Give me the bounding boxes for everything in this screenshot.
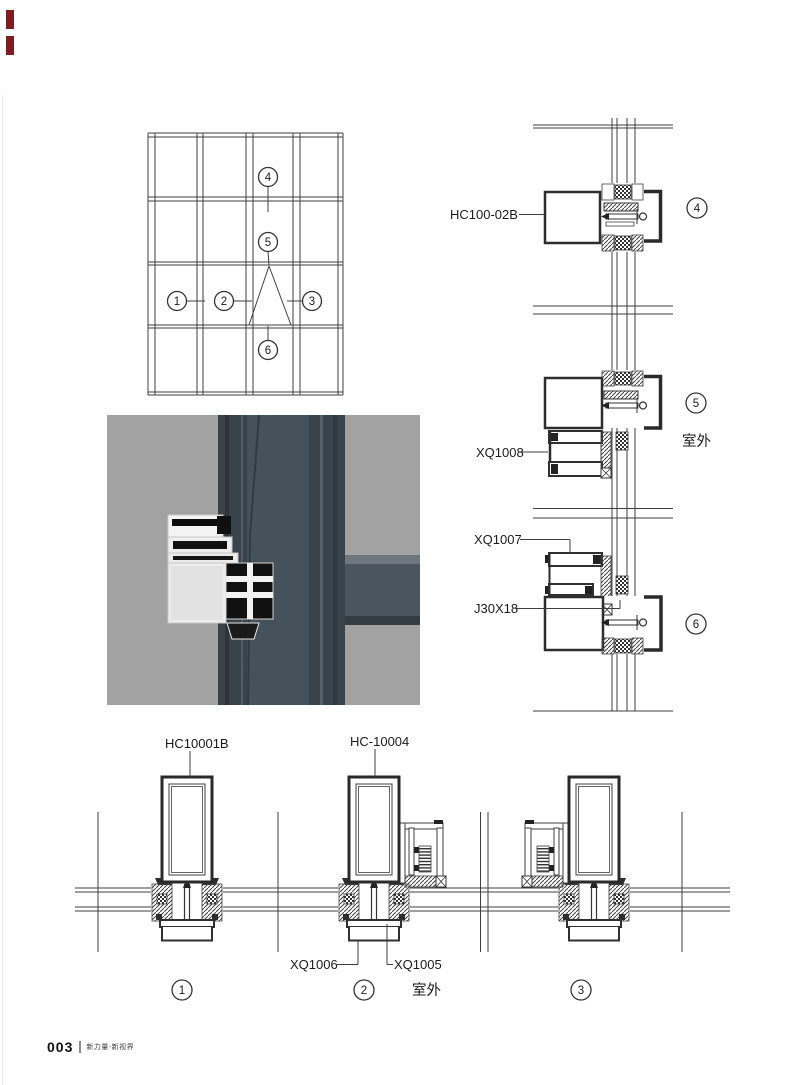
- insulation-strip: [601, 556, 611, 598]
- pressure-plate: [347, 920, 401, 927]
- label-xq1007: XQ1007: [474, 532, 522, 547]
- callout-4-number: 4: [265, 172, 272, 184]
- elevation-callout-1: 1: [168, 292, 187, 311]
- label-j30x18: J30X18: [474, 601, 518, 616]
- section-marker-4: 4: [687, 198, 707, 218]
- page-footer: 003 新力量·新视界: [47, 1039, 134, 1055]
- callout-1-number: 1: [174, 296, 180, 308]
- callout-3-number: 3: [309, 296, 315, 308]
- svg-text:5: 5: [693, 398, 699, 410]
- vent-frame-profiles: [549, 431, 602, 477]
- page-edge-mark-bottom: [6, 36, 14, 55]
- label-xq1008: XQ1008: [476, 445, 524, 460]
- elevation-callout-3: 3: [303, 292, 322, 311]
- detail-5-node: XQ1008 5 室外: [476, 370, 711, 478]
- openable-window-symbol: [249, 266, 291, 325]
- elevation-callout-4: 4: [259, 168, 278, 187]
- elevation-leader-lines: [187, 187, 303, 341]
- x-box: [522, 876, 532, 887]
- cover-cap: [349, 927, 399, 941]
- svg-text:3: 3: [578, 985, 584, 997]
- glazing-gasket: [616, 576, 628, 594]
- thermal-insert: [604, 203, 638, 211]
- detail-4-node: HC100-02B 4: [450, 183, 707, 252]
- svg-text:6: 6: [693, 619, 699, 631]
- mullion-profile-box: [349, 777, 399, 882]
- section-marker-6: 6: [686, 614, 706, 634]
- x-box: [436, 876, 446, 887]
- callout-6-number: 6: [265, 345, 271, 357]
- scan-edge-line: [2, 95, 3, 1085]
- gasket-block: [615, 185, 631, 199]
- insulation-strip: [601, 432, 611, 468]
- svg-text:1: 1: [179, 985, 185, 997]
- page-number: 003: [47, 1039, 73, 1055]
- page-edge-mark-top: [6, 10, 14, 29]
- vent-sash-plan: [399, 820, 446, 887]
- mullion-profile-box: [545, 192, 600, 243]
- mullion-profile-box: [162, 777, 212, 882]
- pressure-plate: [567, 920, 621, 927]
- horizontal-section-details: HC10001B 1: [60, 730, 760, 1008]
- section-marker-5: 5: [686, 393, 706, 413]
- footer-divider: [79, 1041, 81, 1053]
- svg-text:2: 2: [361, 985, 367, 997]
- section-marker-2: 2: [354, 980, 374, 1000]
- mullion-profile-box: [545, 378, 602, 428]
- label-hc100-02b: HC100-02B: [450, 207, 518, 222]
- pressure-plate: [160, 920, 214, 927]
- vent-sash-plan: [522, 820, 569, 887]
- elevation-callout-6: 6: [259, 341, 278, 360]
- outdoor-annotation-bottom: 室外: [412, 982, 441, 999]
- glazing-gasket: [616, 432, 628, 450]
- cover-cap: [569, 927, 619, 941]
- journal-title: 新力量·新视界: [86, 1042, 134, 1052]
- vent-sash-profiles: [545, 553, 602, 597]
- callout-2-number: 2: [221, 296, 227, 308]
- x-box: [601, 468, 611, 478]
- elevation-grid-lines: [148, 133, 343, 395]
- detail-1-node: HC10001B 1: [151, 736, 229, 1000]
- svg-text:4: 4: [694, 203, 701, 215]
- profile-render-photo: [107, 415, 420, 705]
- label-hc10001b: HC10001B: [165, 736, 229, 751]
- curtain-wall-elevation-diagram: 4 5 1 2 3 6: [130, 110, 370, 410]
- label-hc-10004: HC-10004: [350, 734, 409, 749]
- pressure-plate-bracket: [644, 377, 661, 429]
- detail-6-node: XQ1007 J30X18 6: [474, 532, 706, 654]
- catalog-page: 4 5 1 2 3 6: [0, 0, 800, 1085]
- outdoor-annotation-right: 室外: [682, 433, 711, 450]
- detail-2-node: HC-10004 XQ1006 XQ1005 2 室外: [290, 734, 446, 1000]
- cover-cap: [162, 927, 212, 941]
- elevation-callout-2: 2: [215, 292, 234, 311]
- elevation-callout-5: 5: [259, 233, 278, 252]
- callout-5-number: 5: [265, 237, 271, 249]
- mullion-profile-box: [545, 597, 603, 650]
- mullion-profile-box: [569, 777, 619, 882]
- vertical-section-details: HC100-02B 4: [440, 113, 770, 721]
- section-marker-1: 1: [172, 980, 192, 1000]
- label-xq1005: XQ1005: [394, 957, 442, 972]
- section-marker-3: 3: [571, 980, 591, 1000]
- label-xq1006: XQ1006: [290, 957, 338, 972]
